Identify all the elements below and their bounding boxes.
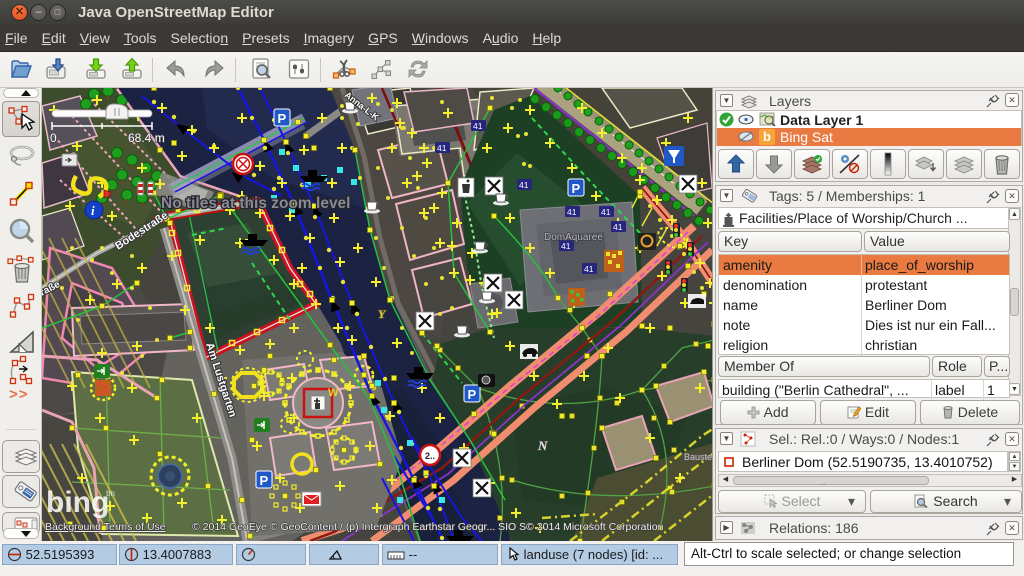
svg-text:41: 41 xyxy=(437,143,447,153)
svg-text:Background Terms of Use: Background Terms of Use xyxy=(45,521,166,533)
svg-text:No tiles at this zoom level: No tiles at this zoom level xyxy=(161,195,351,212)
svg-text:0: 0 xyxy=(50,131,57,145)
svg-text:Baustelle: Baustelle xyxy=(684,452,712,462)
svg-text:P: P xyxy=(260,473,269,488)
svg-text:41: 41 xyxy=(473,121,483,131)
svg-text:P: P xyxy=(468,387,477,402)
svg-text:41: 41 xyxy=(613,222,623,232)
svg-text:tm: tm xyxy=(106,489,115,498)
svg-text:DomAquaree: DomAquaree xyxy=(544,232,603,243)
svg-text:41: 41 xyxy=(567,207,577,217)
svg-text:W: W xyxy=(328,387,339,399)
svg-text:© 2014 GeoEye © GeoContent / (: © 2014 GeoEye © GeoContent / (p) Intergr… xyxy=(192,521,664,533)
svg-text:bing: bing xyxy=(46,486,109,519)
svg-text:41: 41 xyxy=(601,207,611,217)
svg-text:N: N xyxy=(537,438,548,453)
svg-text:41: 41 xyxy=(584,264,594,274)
svg-text:P: P xyxy=(572,181,581,196)
svg-text:P: P xyxy=(278,111,287,126)
svg-text:i: i xyxy=(91,203,95,218)
svg-text:68.4 m: 68.4 m xyxy=(128,131,165,145)
svg-text:2..: 2.. xyxy=(425,451,435,461)
svg-text:41: 41 xyxy=(519,180,529,190)
